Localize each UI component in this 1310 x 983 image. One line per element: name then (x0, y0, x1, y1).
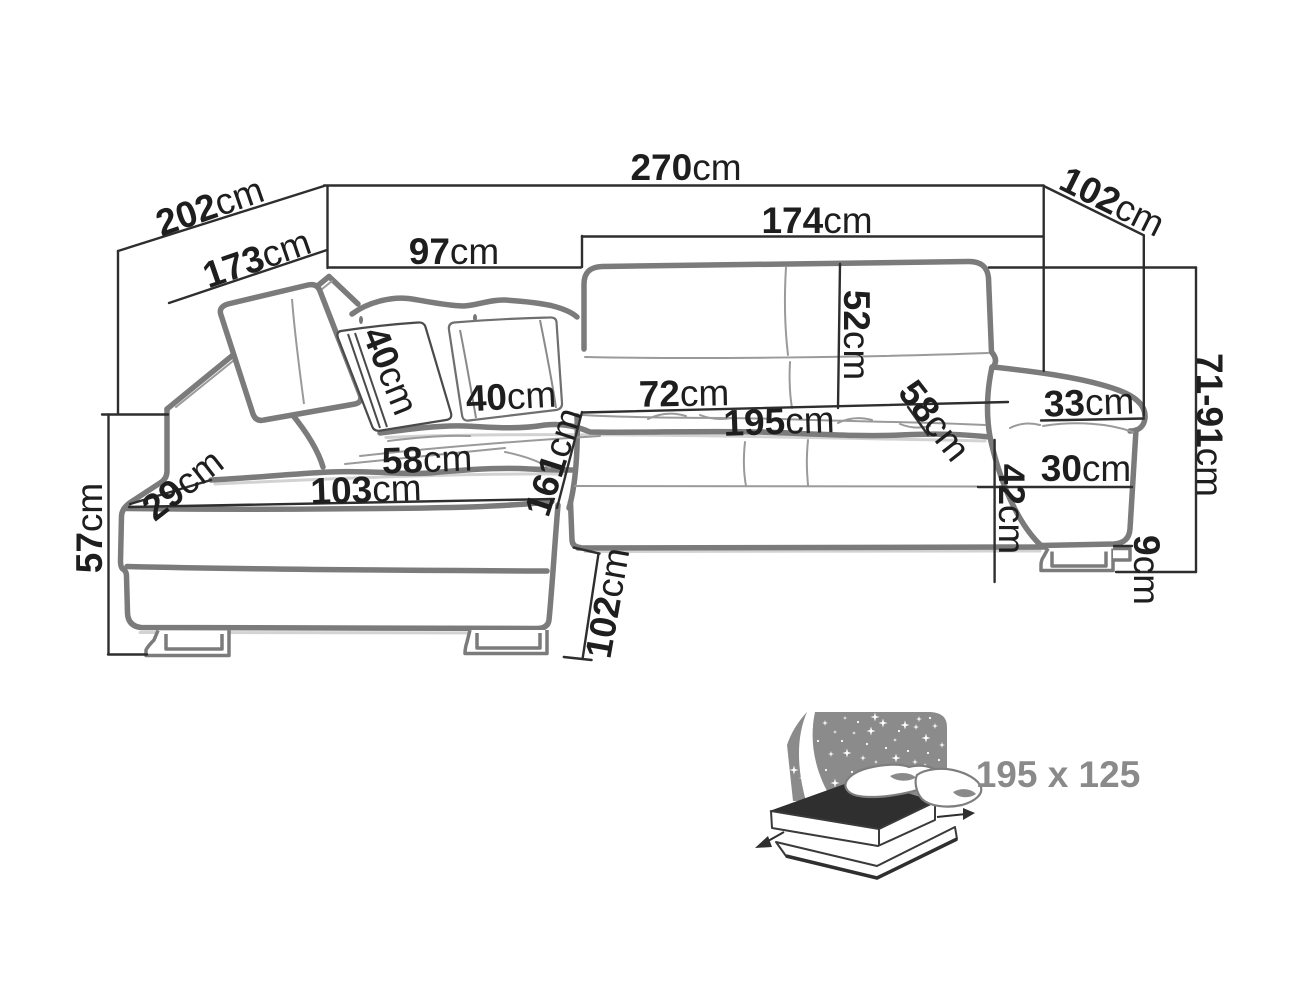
svg-text:97cm: 97cm (409, 231, 499, 272)
svg-text:33cm: 33cm (1043, 380, 1135, 424)
svg-text:52cm: 52cm (836, 290, 877, 380)
svg-text:72cm: 72cm (638, 372, 729, 415)
svg-text:71-91cm: 71-91cm (1189, 353, 1230, 497)
svg-text:195cm: 195cm (723, 399, 835, 444)
svg-text:9cm: 9cm (1126, 535, 1167, 605)
svg-text:30cm: 30cm (1041, 448, 1131, 489)
svg-text:103cm: 103cm (310, 467, 422, 512)
svg-text:40cm: 40cm (465, 374, 558, 420)
svg-text:42cm: 42cm (991, 464, 1032, 554)
svg-text:270cm: 270cm (630, 147, 741, 188)
svg-text:195 x 125: 195 x 125 (976, 754, 1141, 795)
svg-text:57cm: 57cm (69, 483, 110, 573)
svg-text:174cm: 174cm (761, 200, 872, 241)
